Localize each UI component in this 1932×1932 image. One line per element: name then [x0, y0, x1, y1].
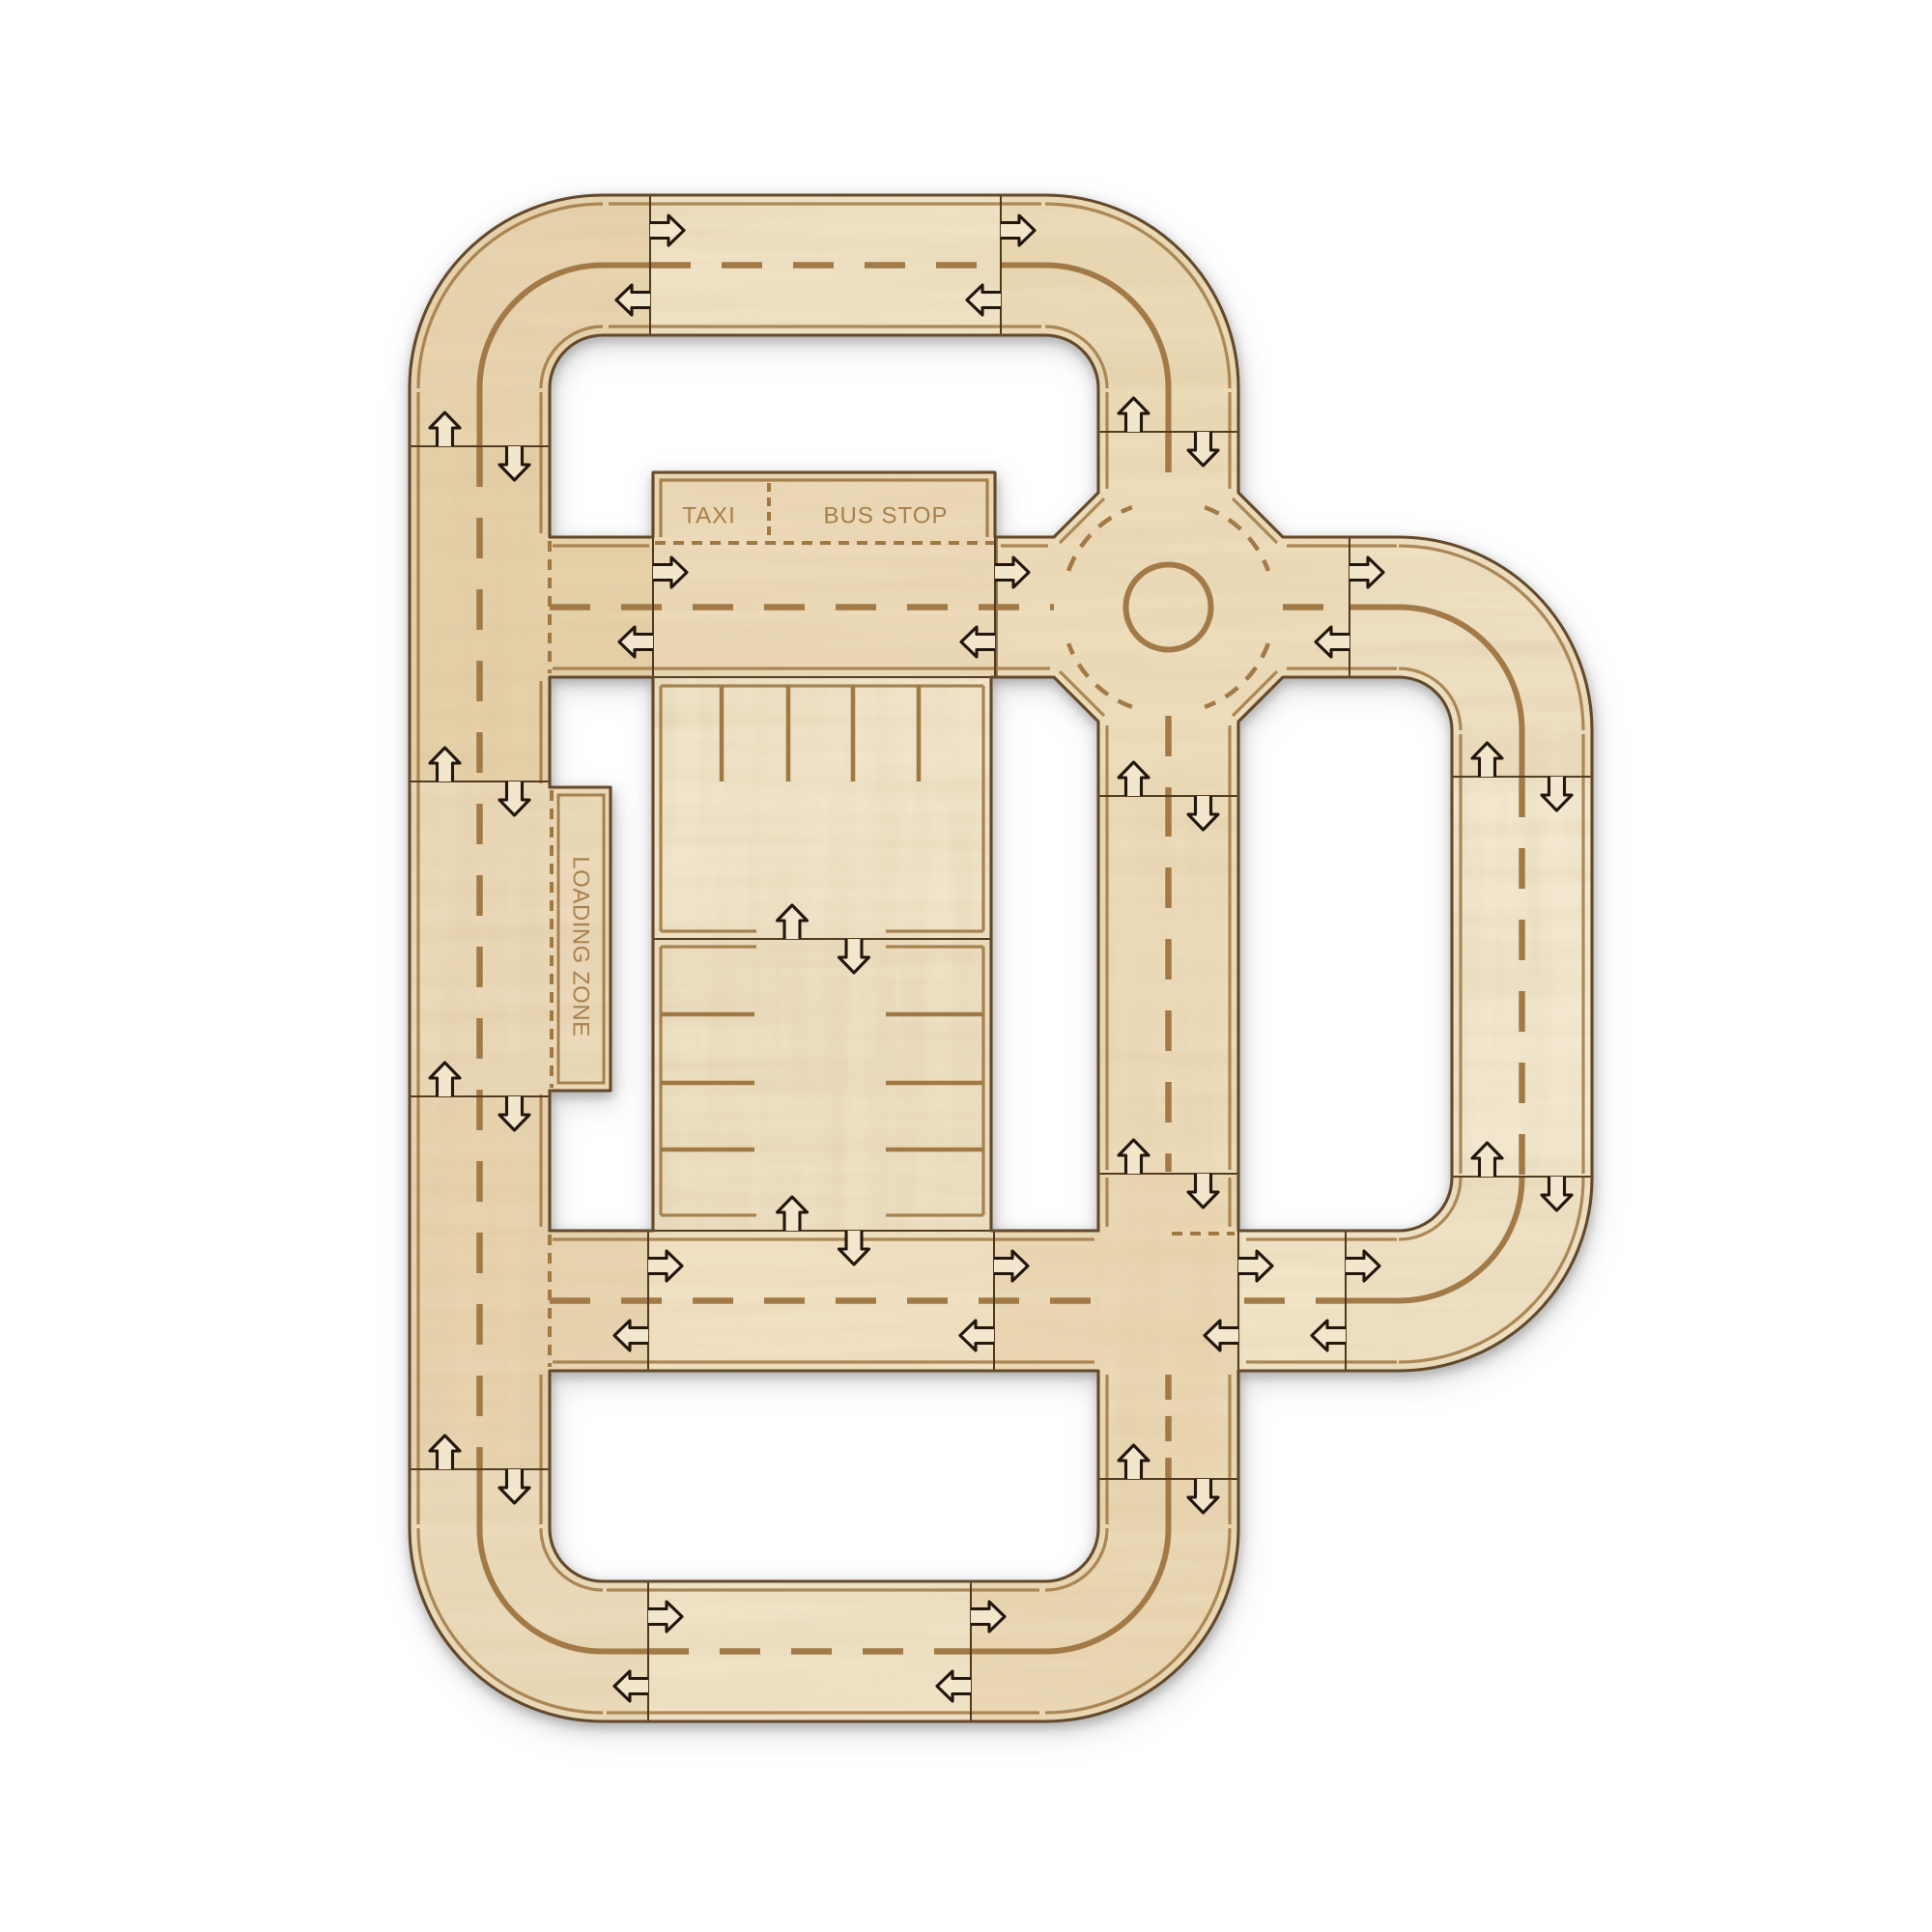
svg-text:TAXI: TAXI [682, 503, 736, 529]
svg-text:BUS STOP: BUS STOP [824, 503, 949, 529]
svg-text:LOADING ZONE: LOADING ZONE [568, 856, 594, 1037]
